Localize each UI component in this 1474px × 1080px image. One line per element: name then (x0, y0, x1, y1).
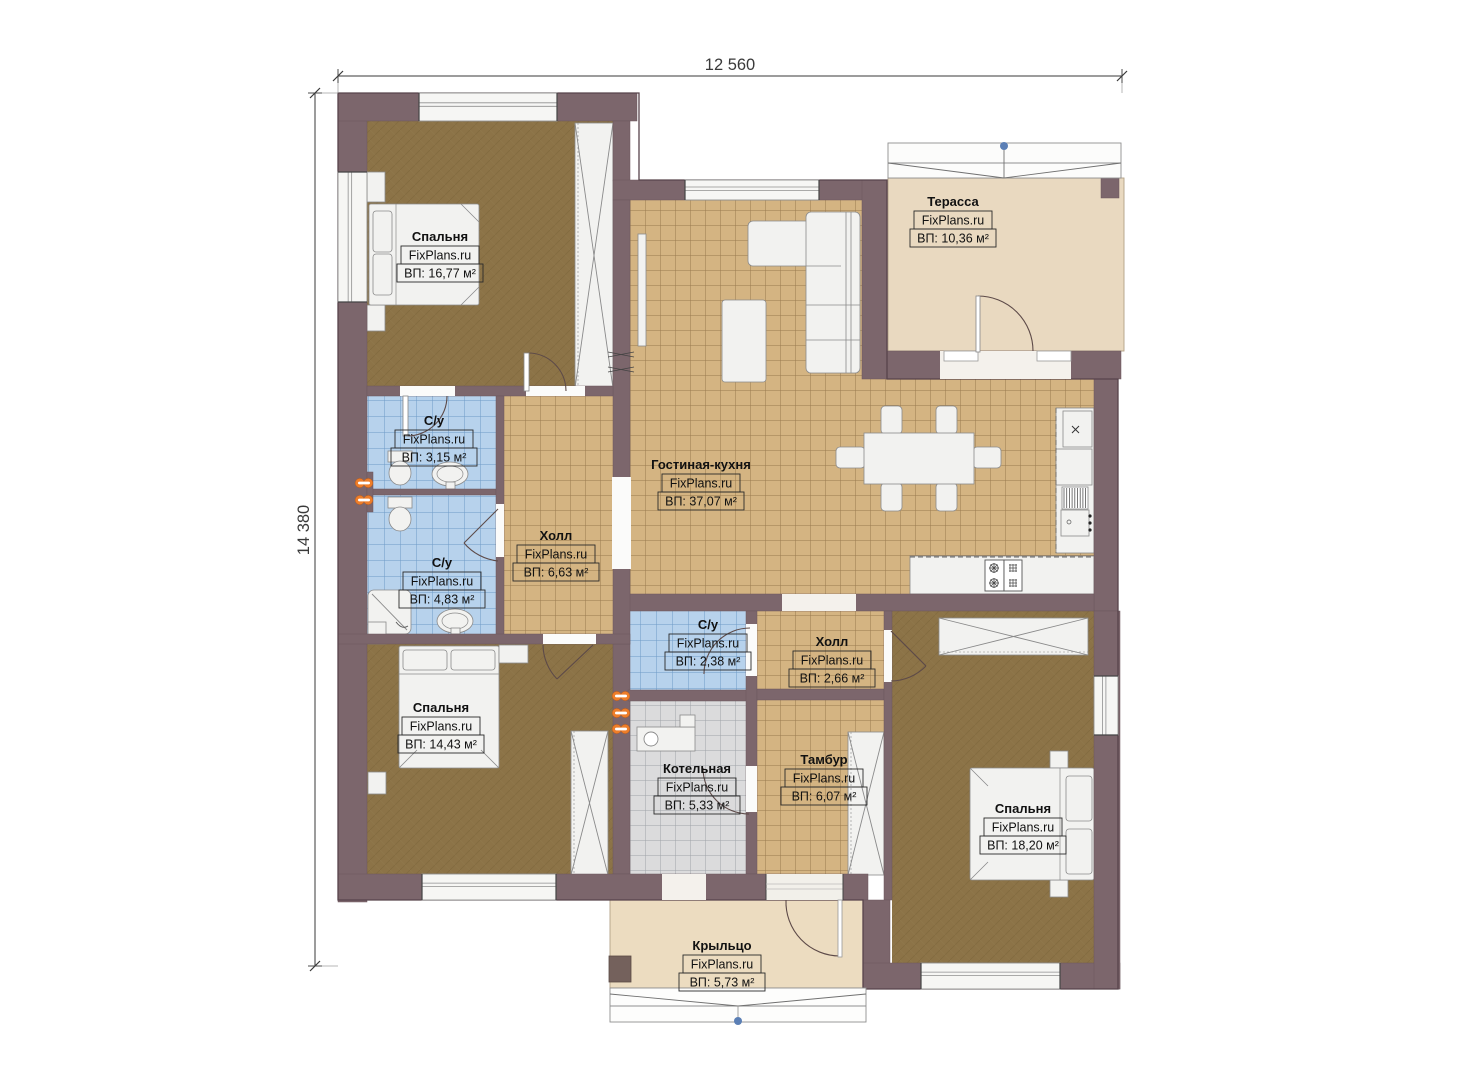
svg-text:ВП: 37,07 м²: ВП: 37,07 м² (665, 495, 737, 509)
svg-text:Холл: Холл (816, 634, 849, 649)
svg-text:Спальня: Спальня (412, 229, 468, 244)
svg-text:FixPlans.ru: FixPlans.ru (801, 654, 864, 668)
svg-text:Терасса: Терасса (927, 194, 979, 209)
svg-text:FixPlans.ru: FixPlans.ru (992, 821, 1055, 835)
svg-text:FixPlans.ru: FixPlans.ru (666, 781, 729, 795)
svg-text:ВП: 6,63 м²: ВП: 6,63 м² (524, 566, 589, 580)
svg-text:ВП: 2,66 м²: ВП: 2,66 м² (800, 672, 865, 686)
svg-text:С/у: С/у (698, 617, 719, 632)
svg-text:14 380: 14 380 (295, 505, 313, 555)
svg-text:ВП: 18,20 м²: ВП: 18,20 м² (987, 839, 1059, 853)
svg-text:Холл: Холл (540, 528, 573, 543)
svg-text:FixPlans.ru: FixPlans.ru (691, 958, 754, 972)
svg-text:12 560: 12 560 (705, 56, 755, 74)
svg-text:Тамбур: Тамбур (800, 752, 847, 767)
svg-text:FixPlans.ru: FixPlans.ru (525, 548, 588, 562)
svg-text:ВП: 16,77 м²: ВП: 16,77 м² (404, 267, 476, 281)
svg-text:ВП: 5,33 м²: ВП: 5,33 м² (665, 799, 730, 813)
svg-text:FixPlans.ru: FixPlans.ru (670, 477, 733, 491)
svg-text:FixPlans.ru: FixPlans.ru (922, 214, 985, 228)
svg-text:ВП: 10,36 м²: ВП: 10,36 м² (917, 232, 989, 246)
svg-text:FixPlans.ru: FixPlans.ru (403, 433, 466, 447)
svg-text:Спальня: Спальня (413, 700, 469, 715)
svg-text:FixPlans.ru: FixPlans.ru (410, 720, 473, 734)
svg-text:Крыльцо: Крыльцо (692, 938, 751, 953)
svg-text:С/у: С/у (432, 555, 453, 570)
svg-text:FixPlans.ru: FixPlans.ru (409, 249, 472, 263)
svg-text:FixPlans.ru: FixPlans.ru (411, 575, 474, 589)
svg-text:ВП: 2,38 м²: ВП: 2,38 м² (676, 655, 741, 669)
svg-text:ВП: 14,43 м²: ВП: 14,43 м² (405, 738, 477, 752)
svg-text:FixPlans.ru: FixPlans.ru (793, 772, 856, 786)
svg-text:ВП: 5,73 м²: ВП: 5,73 м² (690, 976, 755, 990)
svg-text:ВП: 6,07 м²: ВП: 6,07 м² (792, 790, 857, 804)
svg-text:ВП: 3,15 м²: ВП: 3,15 м² (402, 451, 467, 465)
svg-text:Котельная: Котельная (663, 761, 731, 776)
svg-text:Спальня: Спальня (995, 801, 1051, 816)
svg-text:FixPlans.ru: FixPlans.ru (677, 637, 740, 651)
svg-text:Гостиная-кухня: Гостиная-кухня (651, 457, 751, 472)
svg-text:С/у: С/у (424, 413, 445, 428)
svg-text:ВП: 4,83 м²: ВП: 4,83 м² (410, 593, 475, 607)
